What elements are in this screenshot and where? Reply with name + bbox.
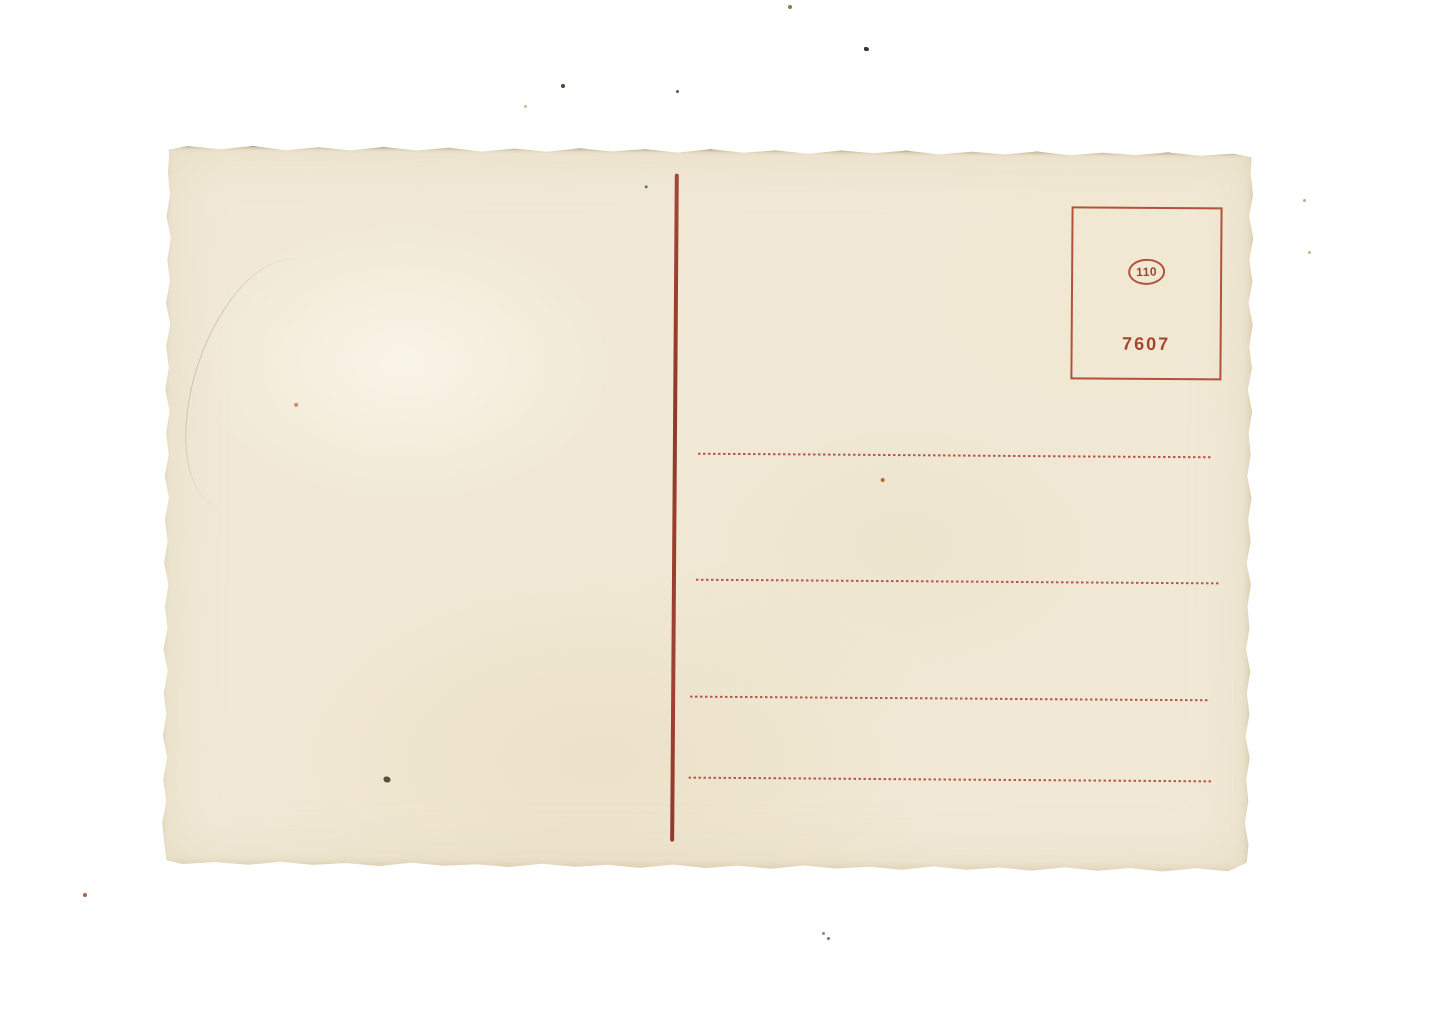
paper-blemish — [294, 403, 298, 407]
deckle-edge-top-soft — [166, 146, 1255, 157]
stamp-series-oval: 110 — [1128, 258, 1166, 285]
dust-speck — [83, 893, 87, 897]
dust-speck — [1303, 199, 1306, 202]
address-line-1 — [698, 453, 1211, 459]
paper-blemish — [384, 777, 391, 783]
dust-speck — [561, 84, 565, 88]
paper-blemish — [645, 185, 648, 188]
dust-speck — [676, 90, 679, 93]
address-line-2 — [696, 579, 1220, 585]
postcard: 110 7607 — [161, 144, 1255, 874]
stamp-box: 110 7607 — [1070, 206, 1222, 380]
dust-speck — [827, 937, 830, 940]
paper-blemish — [881, 478, 885, 482]
dust-speck — [524, 105, 527, 108]
stamp-series-number: 110 — [1136, 266, 1157, 279]
dust-speck — [788, 5, 792, 9]
dust-speck — [1308, 251, 1311, 254]
scan-background: 110 7607 — [0, 0, 1445, 1009]
dust-speck — [864, 47, 869, 51]
message-address-divider-line — [670, 174, 679, 842]
dust-speck — [822, 932, 825, 935]
catalog-number: 7607 — [1073, 333, 1220, 355]
address-line-4 — [689, 777, 1212, 783]
address-line-3 — [690, 696, 1210, 702]
paper-crease — [157, 241, 363, 529]
